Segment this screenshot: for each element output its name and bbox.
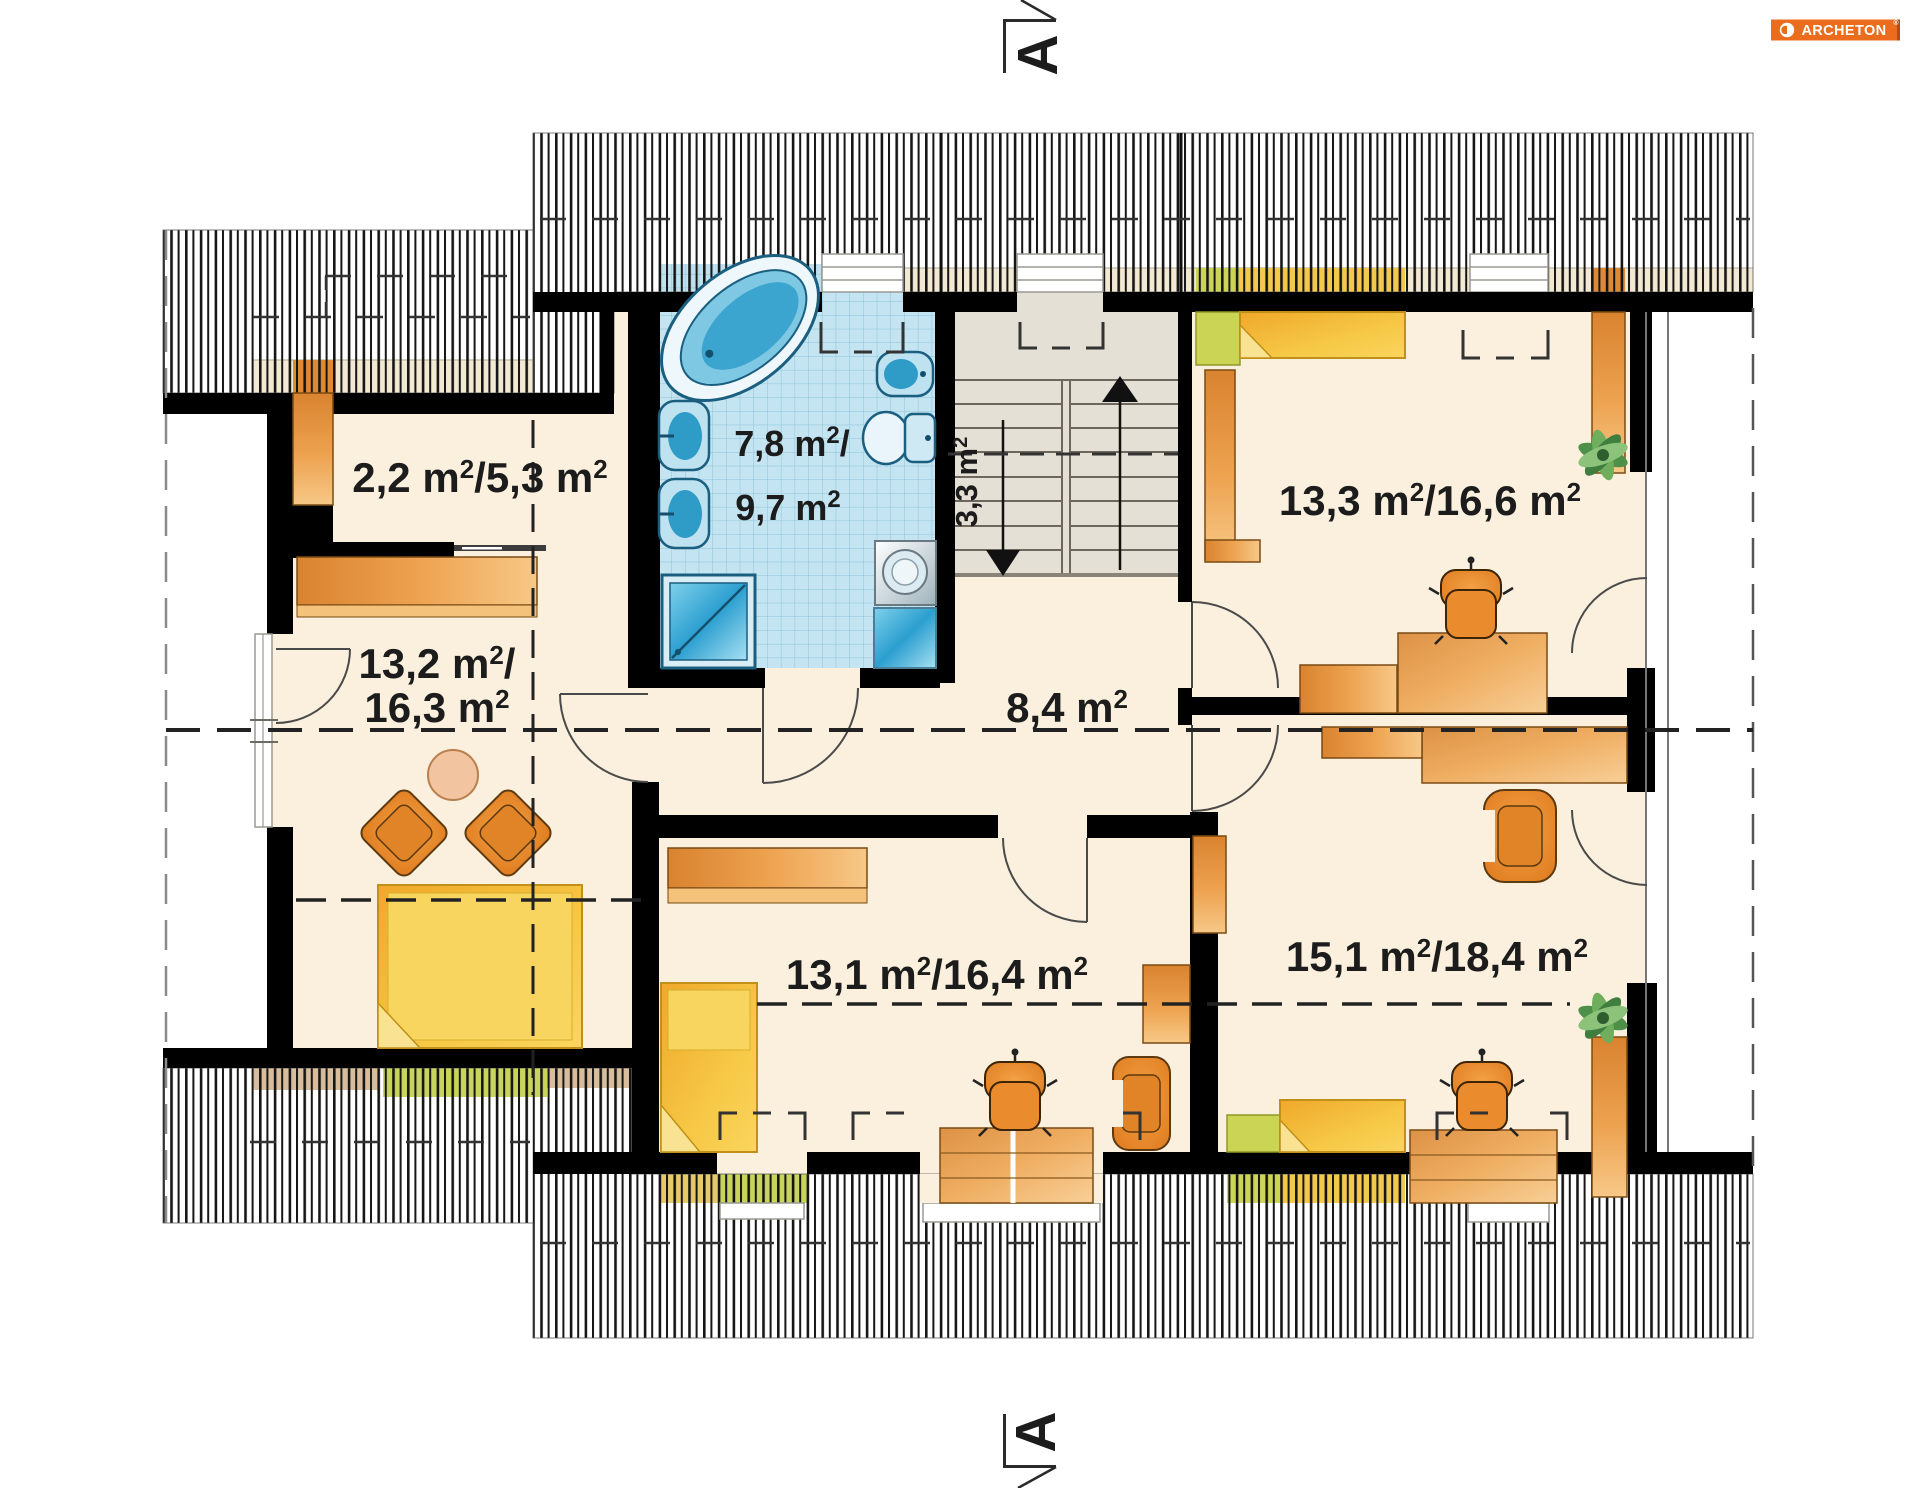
svg-text:13,1 m2/16,4 m2: 13,1 m2/16,4 m2: [786, 951, 1088, 998]
svg-text:16,3 m2: 16,3 m2: [364, 684, 509, 731]
svg-text:9,7 m2: 9,7 m2: [735, 486, 840, 528]
svg-text:A: A: [1006, 34, 1070, 75]
svg-text:ARCHETON: ARCHETON: [1801, 23, 1886, 39]
svg-text:A: A: [1004, 1411, 1068, 1452]
svg-text:2,2 m2/5,3 m2: 2,2 m2/5,3 m2: [352, 454, 607, 501]
svg-text:15,1 m2/18,4 m2: 15,1 m2/18,4 m2: [1286, 933, 1588, 980]
svg-text:®: ®: [1893, 19, 1899, 27]
svg-text:3,3 m2: 3,3 m2: [949, 437, 984, 527]
svg-text:13,3 m2/16,6 m2: 13,3 m2/16,6 m2: [1279, 477, 1581, 524]
svg-text:8,4 m2: 8,4 m2: [1006, 684, 1128, 731]
